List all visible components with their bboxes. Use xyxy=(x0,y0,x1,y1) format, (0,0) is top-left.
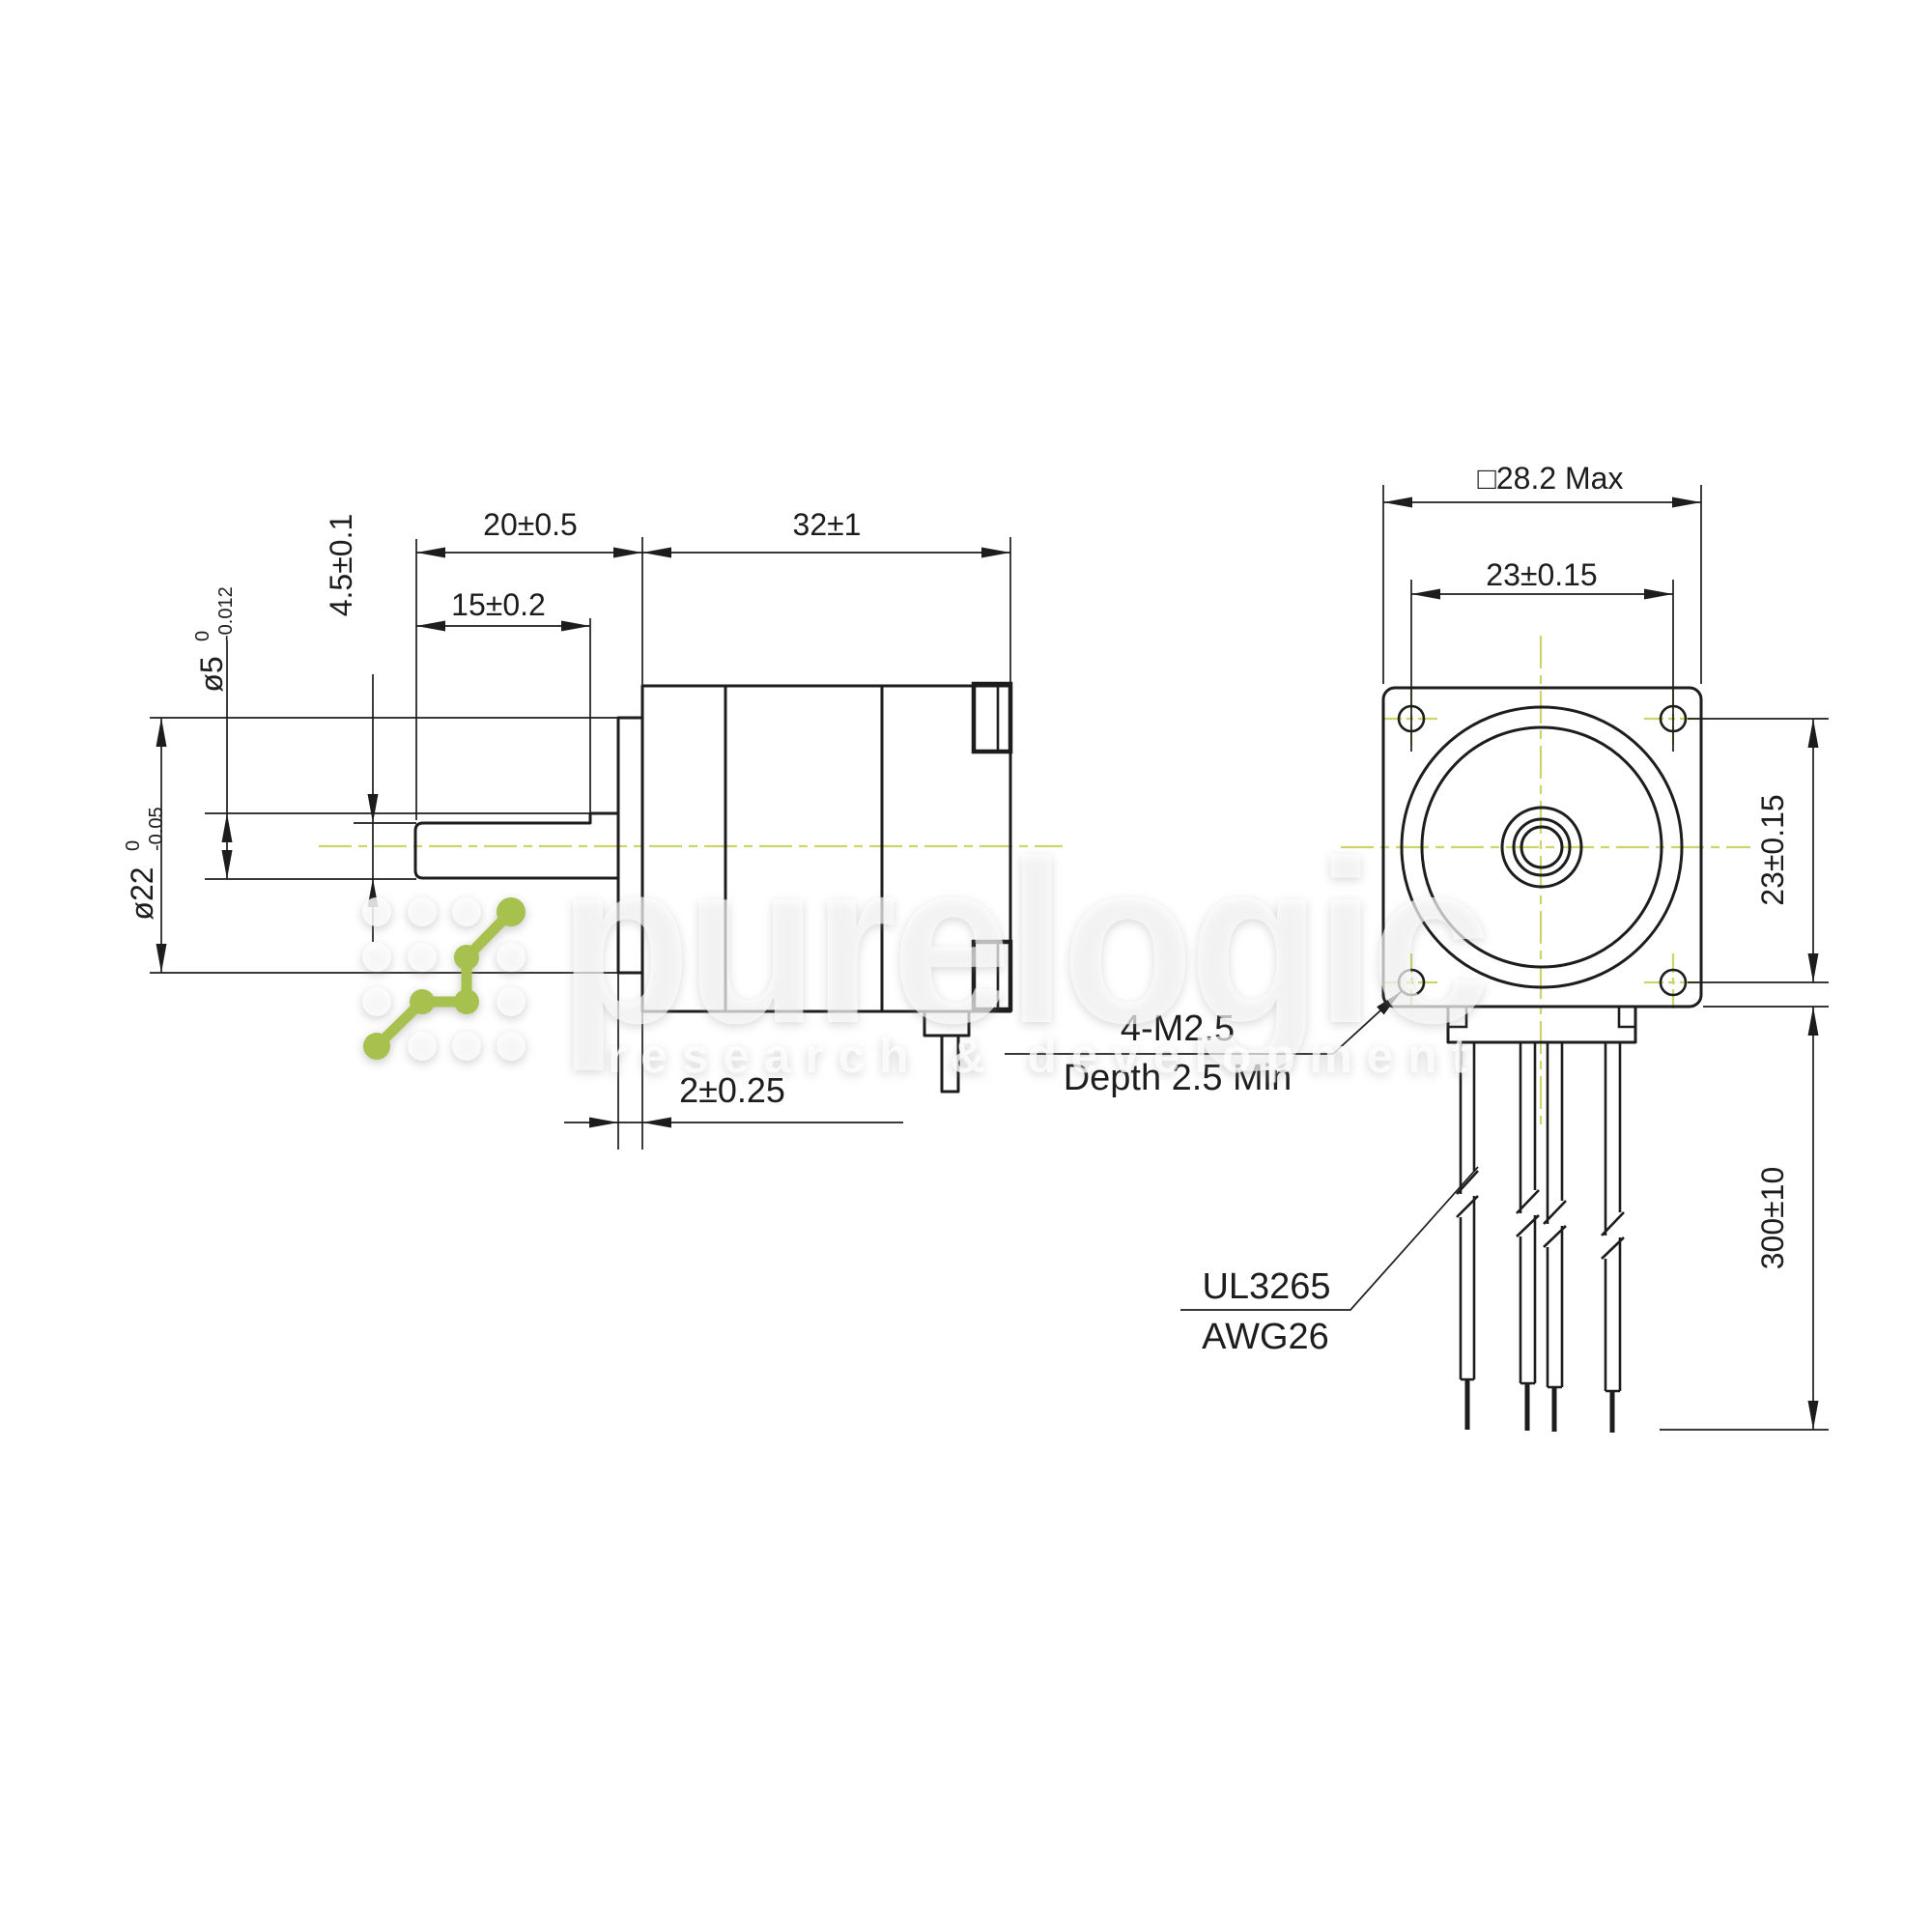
watermark: purelogic research & development xyxy=(362,812,1486,1083)
motor-dimension-drawing: 20±0.5 32±1 15±0.2 4.5±0.1 ø5 0 -0.012 ø… xyxy=(0,0,1932,1932)
dim-flat-length: 15±0.2 xyxy=(451,587,546,622)
dim-flat-height: 4.5±0.1 xyxy=(324,514,358,617)
svg-text:0: 0 xyxy=(192,631,213,641)
lead-wire xyxy=(1544,1042,1566,1432)
logo-green-chart xyxy=(363,897,526,1060)
svg-text:ø22: ø22 xyxy=(125,867,159,920)
dim-hole-spacing-h: 23±0.15 xyxy=(1486,557,1597,592)
watermark-tagline: research & development xyxy=(608,1029,1467,1083)
dim-hole-spacing-v: 23±0.15 xyxy=(1755,794,1790,905)
side-rear-tab-top xyxy=(974,684,1010,752)
dim-square-max: □28.2 Max xyxy=(1478,461,1624,496)
dim-body-length: 32±1 xyxy=(793,507,862,542)
lead-wire xyxy=(1457,1042,1478,1430)
dim-shaft-length: 20±0.5 xyxy=(483,507,578,542)
wire-note-line2: AWG26 xyxy=(1202,1317,1329,1357)
wire-note-line1: UL3265 xyxy=(1202,1266,1330,1307)
lead-wire xyxy=(1602,1042,1624,1433)
svg-text:-0.012: -0.012 xyxy=(215,586,237,641)
housing-notch-right xyxy=(1619,1008,1635,1027)
svg-text:23±0.15: 23±0.15 xyxy=(1755,794,1790,905)
dim-wire-length: 300±10 xyxy=(1755,1167,1790,1270)
svg-text:-0.05: -0.05 xyxy=(146,807,167,851)
svg-text:4.5±0.1: 4.5±0.1 xyxy=(324,514,358,617)
svg-text:ø5: ø5 xyxy=(194,656,229,692)
svg-text:0: 0 xyxy=(123,840,144,851)
svg-text:300±10: 300±10 xyxy=(1755,1167,1790,1270)
dim-shaft-diameter: ø5 0 -0.012 xyxy=(192,586,237,692)
watermark-logo xyxy=(362,897,526,1061)
dim-boss-diameter: ø22 0 -0.05 xyxy=(123,807,167,920)
lead-wire xyxy=(1517,1042,1539,1431)
drawing-canvas: 20±0.5 32±1 15±0.2 4.5±0.1 ø5 0 -0.012 ø… xyxy=(0,0,1932,1932)
